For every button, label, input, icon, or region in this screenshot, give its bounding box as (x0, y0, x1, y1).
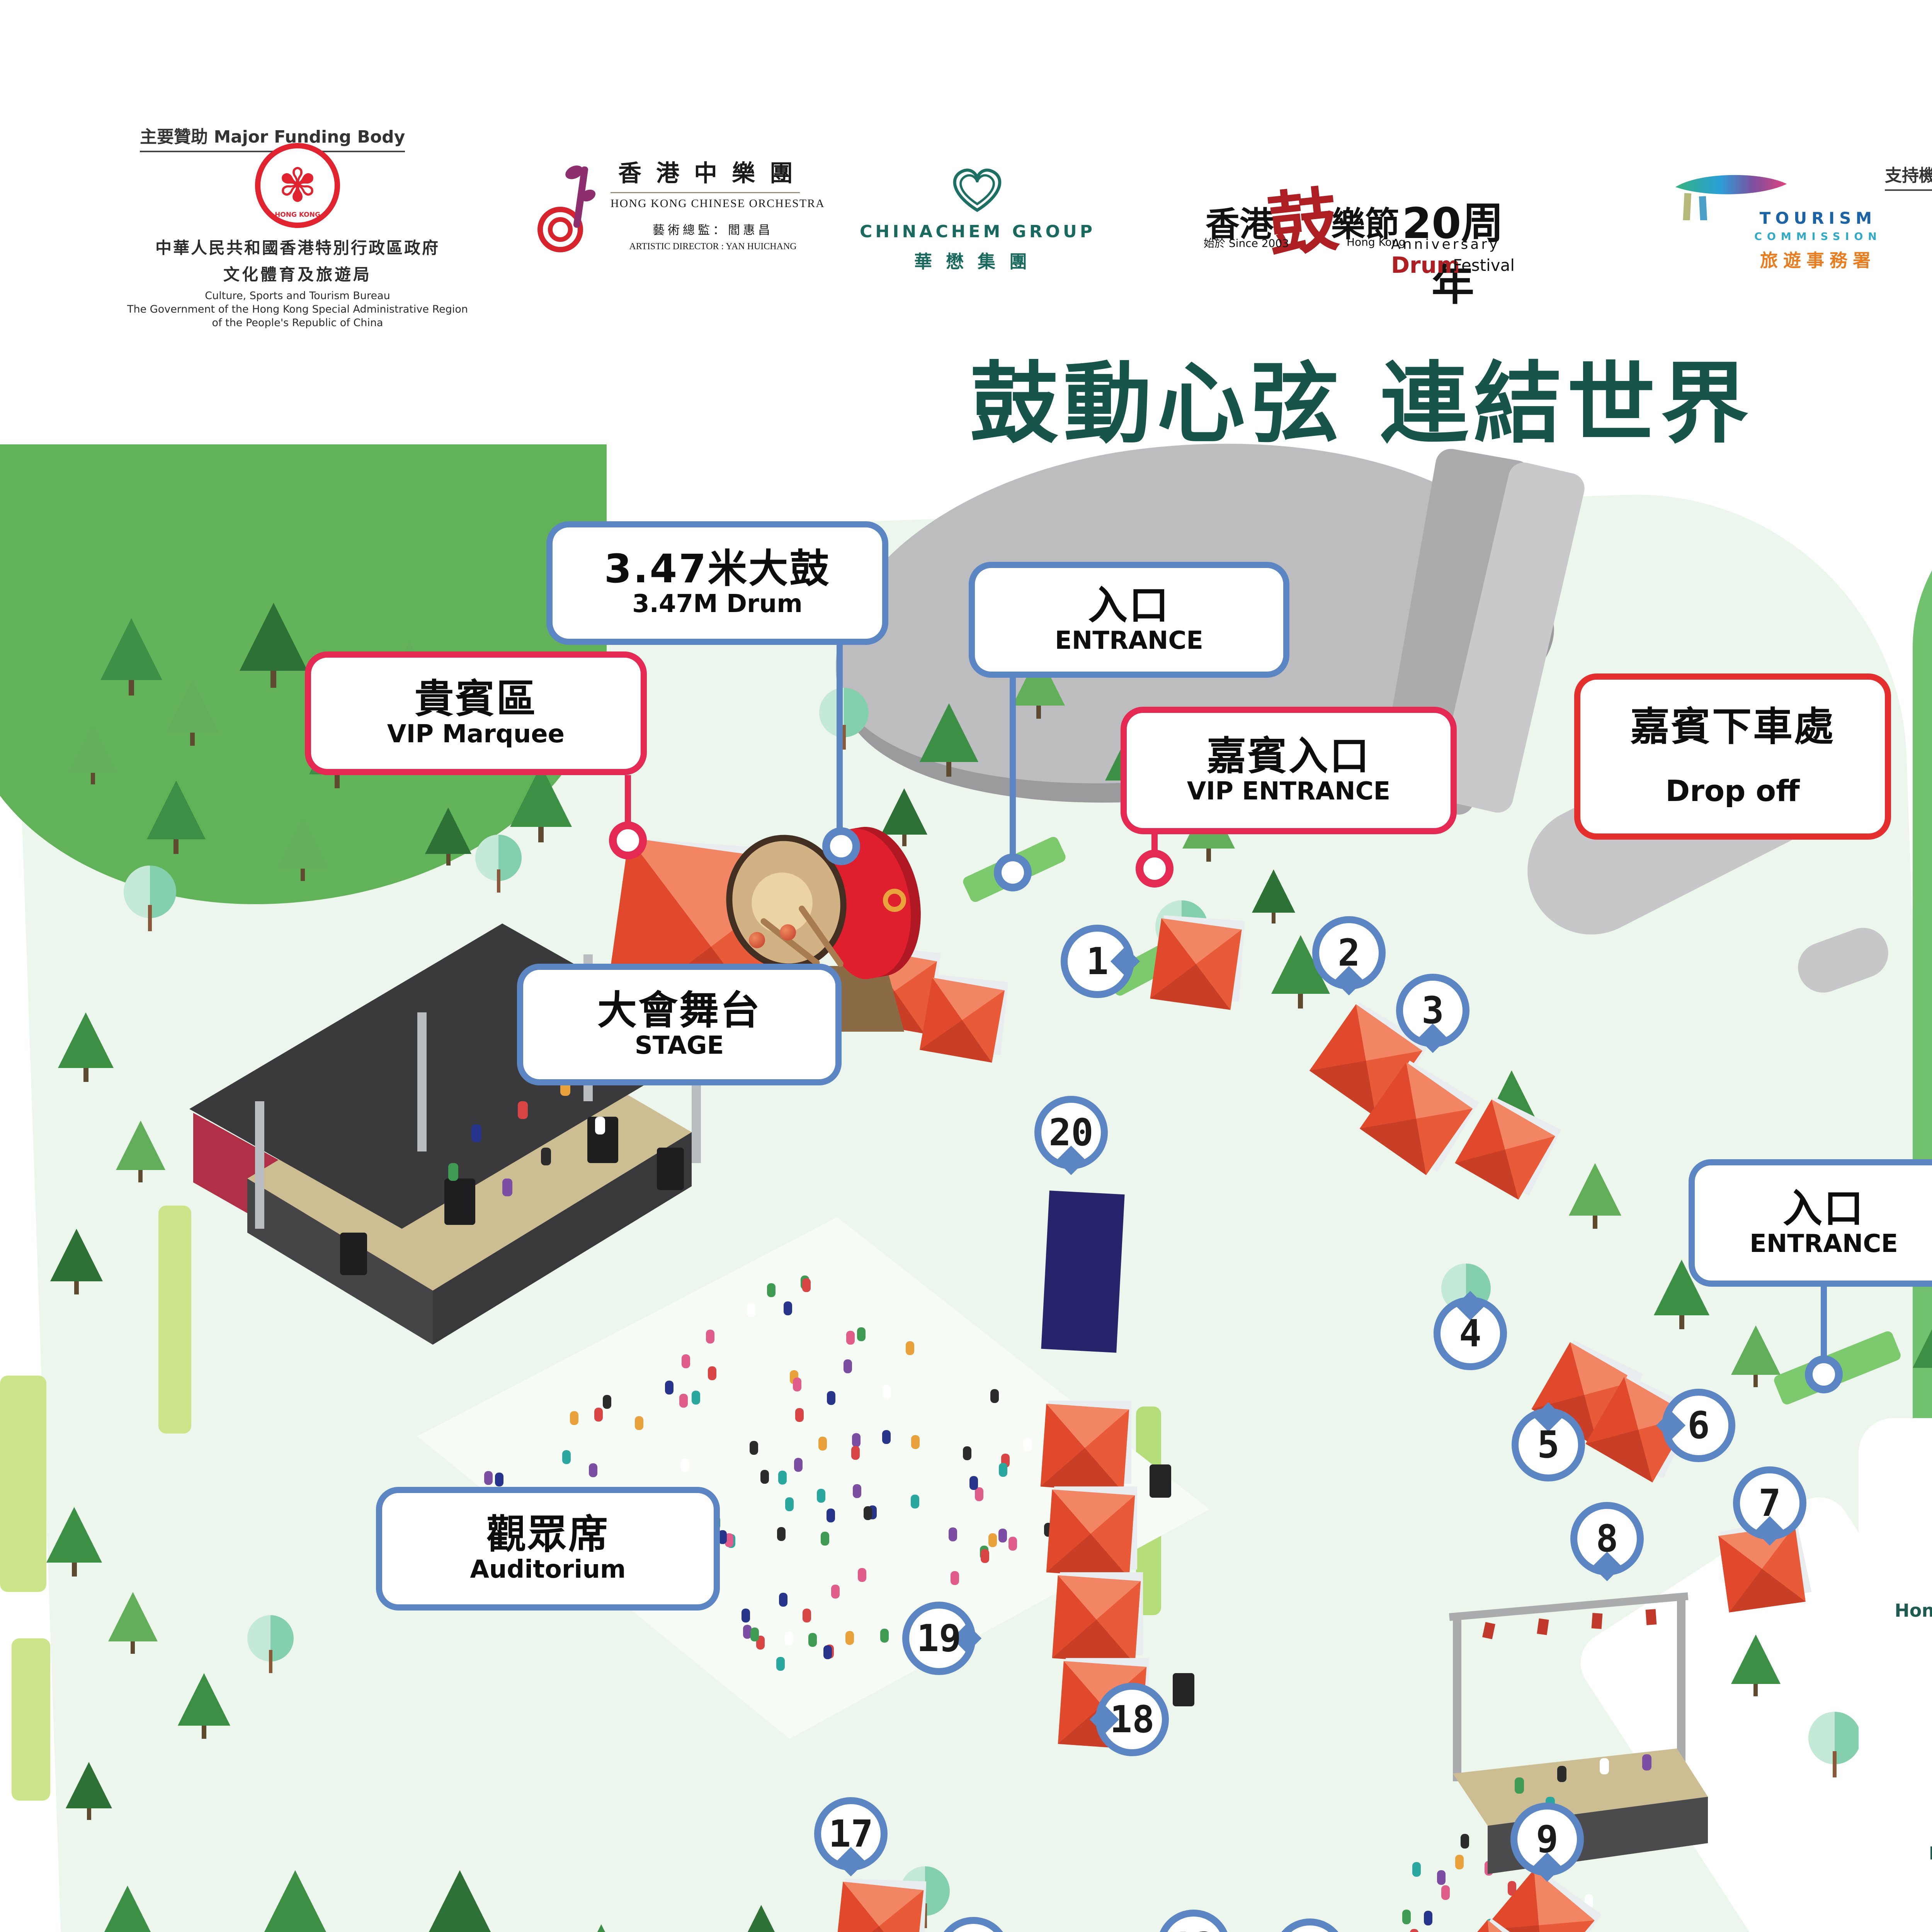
callout-vip-marquee: 貴賓區VIP Marquee (305, 651, 647, 775)
pa-speaker-icon (1150, 1464, 1171, 1498)
location-ring (1136, 850, 1173, 888)
audience-person-icon (851, 1446, 860, 1460)
round-tree-icon (475, 835, 522, 893)
pine-tree-icon (572, 1924, 631, 1932)
pine-tree-icon (166, 680, 219, 746)
audience-person-icon (793, 1378, 801, 1391)
audience-person-icon (784, 1301, 792, 1315)
pine-tree-icon (46, 1507, 102, 1577)
callout-stage: 大會舞台STAGE (517, 964, 842, 1085)
audience-person-icon (906, 1341, 914, 1355)
hksar-emblem-icon: ✾ HONG KONG (255, 143, 340, 228)
map-marker-8: 8 (1570, 1502, 1644, 1575)
pine-tree-icon (108, 1592, 158, 1654)
audience-person-icon (844, 1359, 852, 1373)
pine-tree-icon (730, 1905, 792, 1932)
pa-speaker-icon (1173, 1673, 1194, 1706)
map-marker-9: 9 (1510, 1803, 1584, 1876)
crowd-person-icon (1412, 1862, 1421, 1877)
pine-tree-icon (1252, 869, 1295, 923)
logo-tourism-commission: TOURISM COMMISSION 旅遊事務署 (1669, 170, 1886, 272)
map-marker-5: 5 (1512, 1408, 1585, 1481)
hkco-en: HONG KONG CHINESE ORCHESTRA (611, 197, 815, 210)
audience-person-icon (864, 1506, 872, 1520)
audience-person-icon (857, 1327, 866, 1341)
pine-tree-icon (240, 603, 308, 688)
audience-person-icon (802, 1278, 811, 1292)
stage-speaker-icon (444, 1179, 475, 1225)
hkco-zh: 香港中樂團 (611, 155, 815, 188)
map-marker-7: 7 (1733, 1466, 1806, 1540)
audience-person-icon (589, 1463, 597, 1477)
audience-person-icon (750, 1441, 758, 1455)
audience-person-icon (742, 1609, 750, 1622)
audience-person-icon (911, 1495, 919, 1509)
callout-pointer-line (625, 775, 631, 827)
stage-light-icon (1482, 1622, 1495, 1639)
audience-person-icon (911, 1435, 920, 1449)
map-marker-17: 17 (814, 1797, 888, 1871)
pine-tree-icon (263, 1870, 328, 1932)
audience-person-icon (777, 1527, 786, 1541)
audience-person-icon (882, 1430, 891, 1444)
callout-vip-entrance: 嘉賓入口VIP ENTRANCE (1121, 707, 1457, 834)
audience-person-icon (785, 1497, 794, 1511)
location-ring (609, 821, 647, 859)
stage-truss (255, 1101, 264, 1229)
audience-person-icon (779, 1593, 787, 1607)
programme-list: 12:15-14:00 「香港活力鼓令24式擂台賽」頒獎禮 Hong Kong … (1886, 1528, 1932, 1932)
audience-person-icon (981, 1549, 989, 1563)
callout-drum347-en: 3.47M Drum (632, 590, 803, 618)
audience-person-icon (827, 1509, 835, 1522)
audience-person-icon (747, 1303, 755, 1317)
callout-auditorium-zh: 觀眾席 (486, 1514, 609, 1556)
performer-icon (502, 1179, 512, 1196)
callout-auditorium-en: Auditorium (470, 1556, 626, 1584)
hksar-zh1: 中華人民共和國香港特別行政區政府 (75, 235, 520, 259)
performer-icon (448, 1163, 458, 1181)
hksar-zh2: 文化體育及旅遊局 (75, 262, 520, 285)
tent-icon (1052, 1575, 1141, 1664)
round-tree-icon (247, 1615, 294, 1673)
pine-tree-icon (425, 808, 471, 866)
logo-hkco: 香港中樂團 HONG KONG CHINESE ORCHESTRA 藝術總監：閻… (537, 155, 815, 252)
pine-tree-icon (1731, 1634, 1781, 1696)
audience-person-icon (808, 1633, 817, 1647)
location-ring (1805, 1355, 1843, 1393)
callout-entrance-top-en: ENTRANCE (1055, 627, 1203, 655)
programme-item: 14:30-15:00 「香港活力鼓令24式擂台賽」獲獎隊伍展演 Perform… (1886, 1771, 1932, 1893)
programme-item: 12:15-14:00 「香港活力鼓令24式擂台賽」頒獎禮 Hong Kong … (1886, 1528, 1932, 1624)
audience-person-icon (794, 1458, 803, 1472)
pine-tree-icon (147, 781, 206, 854)
tent-icon (1046, 1490, 1135, 1578)
callout-stage-zh: 大會舞台 (597, 990, 761, 1032)
map-marker-18: 18 (1095, 1683, 1169, 1756)
pine-tree-icon (1913, 1306, 1932, 1383)
tent-icon (835, 1882, 924, 1932)
callout-drop-off-en: Drop off (1665, 774, 1799, 807)
audience-person-icon (827, 1391, 835, 1405)
performer-icon (541, 1148, 551, 1165)
callout-drop-off: 嘉賓下車處Drop off (1574, 673, 1891, 840)
performer-icon (471, 1124, 481, 1142)
programme-item: 15:00-15:30 陝西省延安市安塞腰鼓團巡遊 Shaanxi Provin… (1886, 1919, 1932, 1932)
chinachem-heart-icon (945, 162, 1010, 216)
map-marker-4: 4 (1434, 1297, 1507, 1370)
map-marker-1: 1 (1061, 925, 1134, 998)
performer-icon (595, 1117, 605, 1134)
callout-entrance-top: 入口ENTRANCE (969, 562, 1289, 678)
location-ring (822, 827, 860, 865)
pine-tree-icon (50, 1229, 103, 1294)
map-marker-20: 20 (1034, 1096, 1108, 1169)
audience-person-icon (562, 1450, 571, 1464)
callout-vip-entrance-en: VIP ENTRANCE (1187, 778, 1391, 806)
event-map-poster: 主要贊助 Major Funding Body 支持機構 Supported b… (0, 0, 1932, 1932)
pine-tree-icon (97, 1886, 158, 1932)
tent-icon (1150, 918, 1242, 1010)
competition-stage (1430, 1592, 1731, 1909)
callout-entrance-right-zh: 入口 (1783, 1188, 1865, 1230)
callout-stage-en: STAGE (635, 1032, 724, 1060)
audience-person-icon (949, 1527, 957, 1541)
audience-person-icon (845, 1631, 854, 1645)
pine-tree-icon (70, 726, 116, 784)
audience-person-icon (880, 1629, 889, 1643)
audience-person-icon (803, 1609, 811, 1622)
round-tree-icon (819, 688, 869, 750)
audience-person-icon (823, 1645, 832, 1659)
logo-hksar-government: ✾ HONG KONG 中華人民共和國香港特別行政區政府 文化體育及旅遊局 Cu… (75, 143, 520, 329)
audience-person-icon (795, 1408, 804, 1422)
audience-person-icon (484, 1471, 493, 1485)
location-ring (994, 854, 1032, 891)
crowd-person-icon (1402, 1910, 1411, 1924)
performer-icon (518, 1101, 528, 1119)
lime-strip (12, 1638, 50, 1801)
audience-person-icon (818, 1437, 827, 1451)
programme-title-zh: 啟動禮 (1886, 1686, 1932, 1713)
programme-title-zh: 「香港活力鼓令24式擂台賽」頒獎禮 (1886, 1565, 1932, 1592)
pine-tree-icon (66, 1762, 112, 1820)
crowd-person-icon (1424, 1911, 1432, 1925)
map-marker-19: 19 (902, 1602, 976, 1675)
map-marker-2: 2 (1312, 916, 1386, 990)
hkco-swirl-icon (537, 158, 622, 255)
callout-entrance-right-en: ENTRANCE (1750, 1230, 1898, 1258)
pine-tree-icon (1731, 1325, 1781, 1387)
pine-tree-icon (178, 1673, 230, 1739)
audience-person-icon (750, 1628, 759, 1641)
pine-tree-icon (1569, 1163, 1621, 1229)
pine-tree-icon (278, 819, 328, 881)
dancer-icon (1642, 1754, 1651, 1770)
callout-vip-marquee-en: VIP Marquee (387, 721, 565, 748)
programme-item: 14:00-14:30 啟動禮 Kick off ceremony (1886, 1650, 1932, 1745)
callout-vip-marquee-zh: 貴賓區 (415, 678, 537, 721)
round-tree-icon (124, 866, 176, 931)
chinachem-en: CHINACHEM GROUP (850, 222, 1105, 241)
audience-person-icon (858, 1568, 866, 1582)
audience-person-icon (852, 1433, 861, 1447)
audience-person-icon (495, 1473, 503, 1486)
audience-person-icon (988, 1533, 997, 1547)
audience-person-icon (1009, 1537, 1017, 1551)
programme-title-en: Kick off ceremony (1886, 1719, 1932, 1745)
pine-tree-icon (429, 1870, 491, 1932)
audience-person-icon (969, 1476, 978, 1490)
callout-pointer-line (1821, 1287, 1827, 1361)
logo-drum-festival: 香港 鼓 樂節 20周年 Anniversary 始於 Since 2003 H… (1198, 170, 1507, 270)
supported-by-label: 支持機構 Supported by (1885, 162, 1932, 191)
pine-tree-icon (116, 1121, 165, 1182)
callout-pointer-line (837, 645, 843, 831)
programme-title-en: Performances of Hong Kong Synergy 24 Dru… (1886, 1840, 1932, 1893)
poster-title: 鼓動心弦 連結世界 (850, 332, 1874, 460)
programme-title-en: Hong Kong Synergy 24 Drum Competition pr… (1886, 1597, 1932, 1624)
tent-icon (1041, 1404, 1129, 1492)
audience-person-icon (817, 1489, 825, 1503)
drum-character: 鼓 (1262, 163, 1342, 270)
logo-chinachem: CHINACHEM GROUP 華懋集團 (850, 162, 1105, 273)
dancer-icon (1600, 1758, 1609, 1774)
audience-person-icon (776, 1657, 785, 1671)
dancer-icon (1515, 1777, 1524, 1794)
audience-person-icon (883, 1385, 891, 1399)
audience-person-icon (681, 1458, 689, 1472)
audience-person-icon (853, 1484, 861, 1498)
round-tree-icon (1808, 1712, 1861, 1777)
audience-person-icon (760, 1470, 769, 1484)
callout-vip-entrance-zh: 嘉賓入口 (1207, 735, 1371, 778)
audience-person-icon (821, 1532, 829, 1546)
map-marker-6: 6 (1662, 1389, 1735, 1462)
callout-entrance-right: 入口ENTRANCE (1689, 1159, 1932, 1287)
callout-pointer-line (1010, 678, 1016, 860)
audience-person-icon (778, 1471, 787, 1485)
dancer-icon (1557, 1766, 1566, 1782)
audience-person-icon (1023, 1438, 1032, 1452)
audience-person-icon (963, 1446, 971, 1460)
audience-person-icon (990, 1389, 999, 1403)
audience-person-icon (999, 1463, 1007, 1477)
callout-entrance-top-zh: 入口 (1088, 585, 1170, 627)
callout-drum347: 3.47米大鼓3.47M Drum (546, 521, 888, 645)
programme-title-zh: 「香港活力鼓令24式擂台賽」獲獎隊伍展演 (1886, 1808, 1932, 1835)
lime-strip (0, 1376, 46, 1592)
pine-tree-icon (920, 703, 978, 777)
callout-drum347-zh: 3.47米大鼓 (604, 548, 831, 590)
pine-tree-icon (58, 1012, 114, 1082)
audience-person-icon (785, 1631, 793, 1645)
media-booth (1041, 1190, 1124, 1353)
audience-person-icon (846, 1331, 855, 1345)
audience-person-icon (767, 1283, 776, 1297)
chinachem-zh: 華懋集團 (850, 248, 1105, 273)
pine-tree-icon (510, 765, 572, 842)
pine-tree-icon (100, 618, 162, 696)
audience-person-icon (998, 1529, 1007, 1543)
audience-person-icon (951, 1571, 959, 1585)
map-marker-3: 3 (1396, 974, 1469, 1047)
callout-drop-off-zh: 嘉賓下車處 (1630, 706, 1835, 748)
audience-person-icon (831, 1585, 840, 1599)
callout-auditorium: 觀眾席Auditorium (376, 1487, 720, 1611)
